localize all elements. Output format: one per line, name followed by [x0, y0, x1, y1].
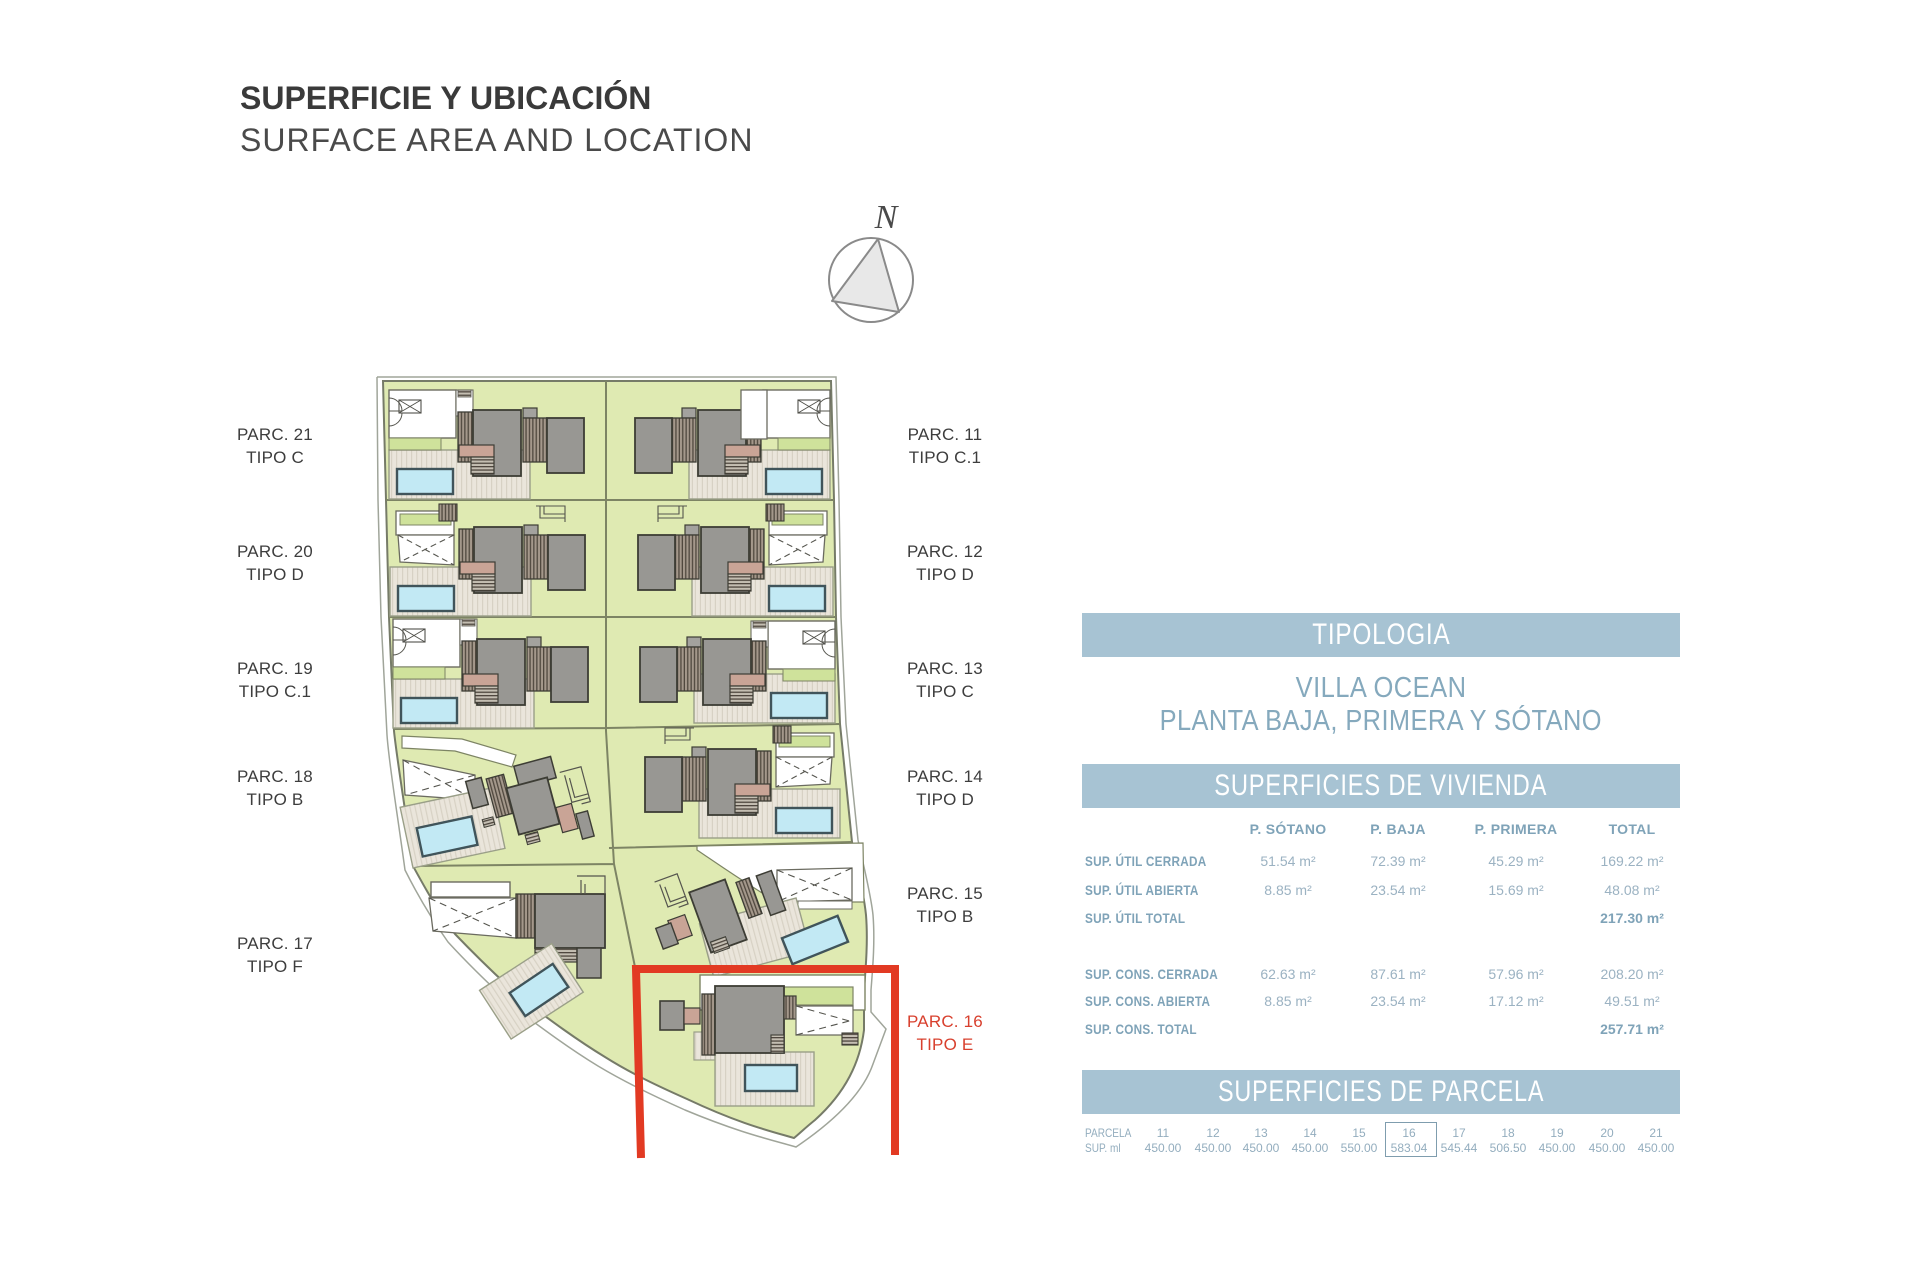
svg-text:N: N: [874, 199, 900, 236]
